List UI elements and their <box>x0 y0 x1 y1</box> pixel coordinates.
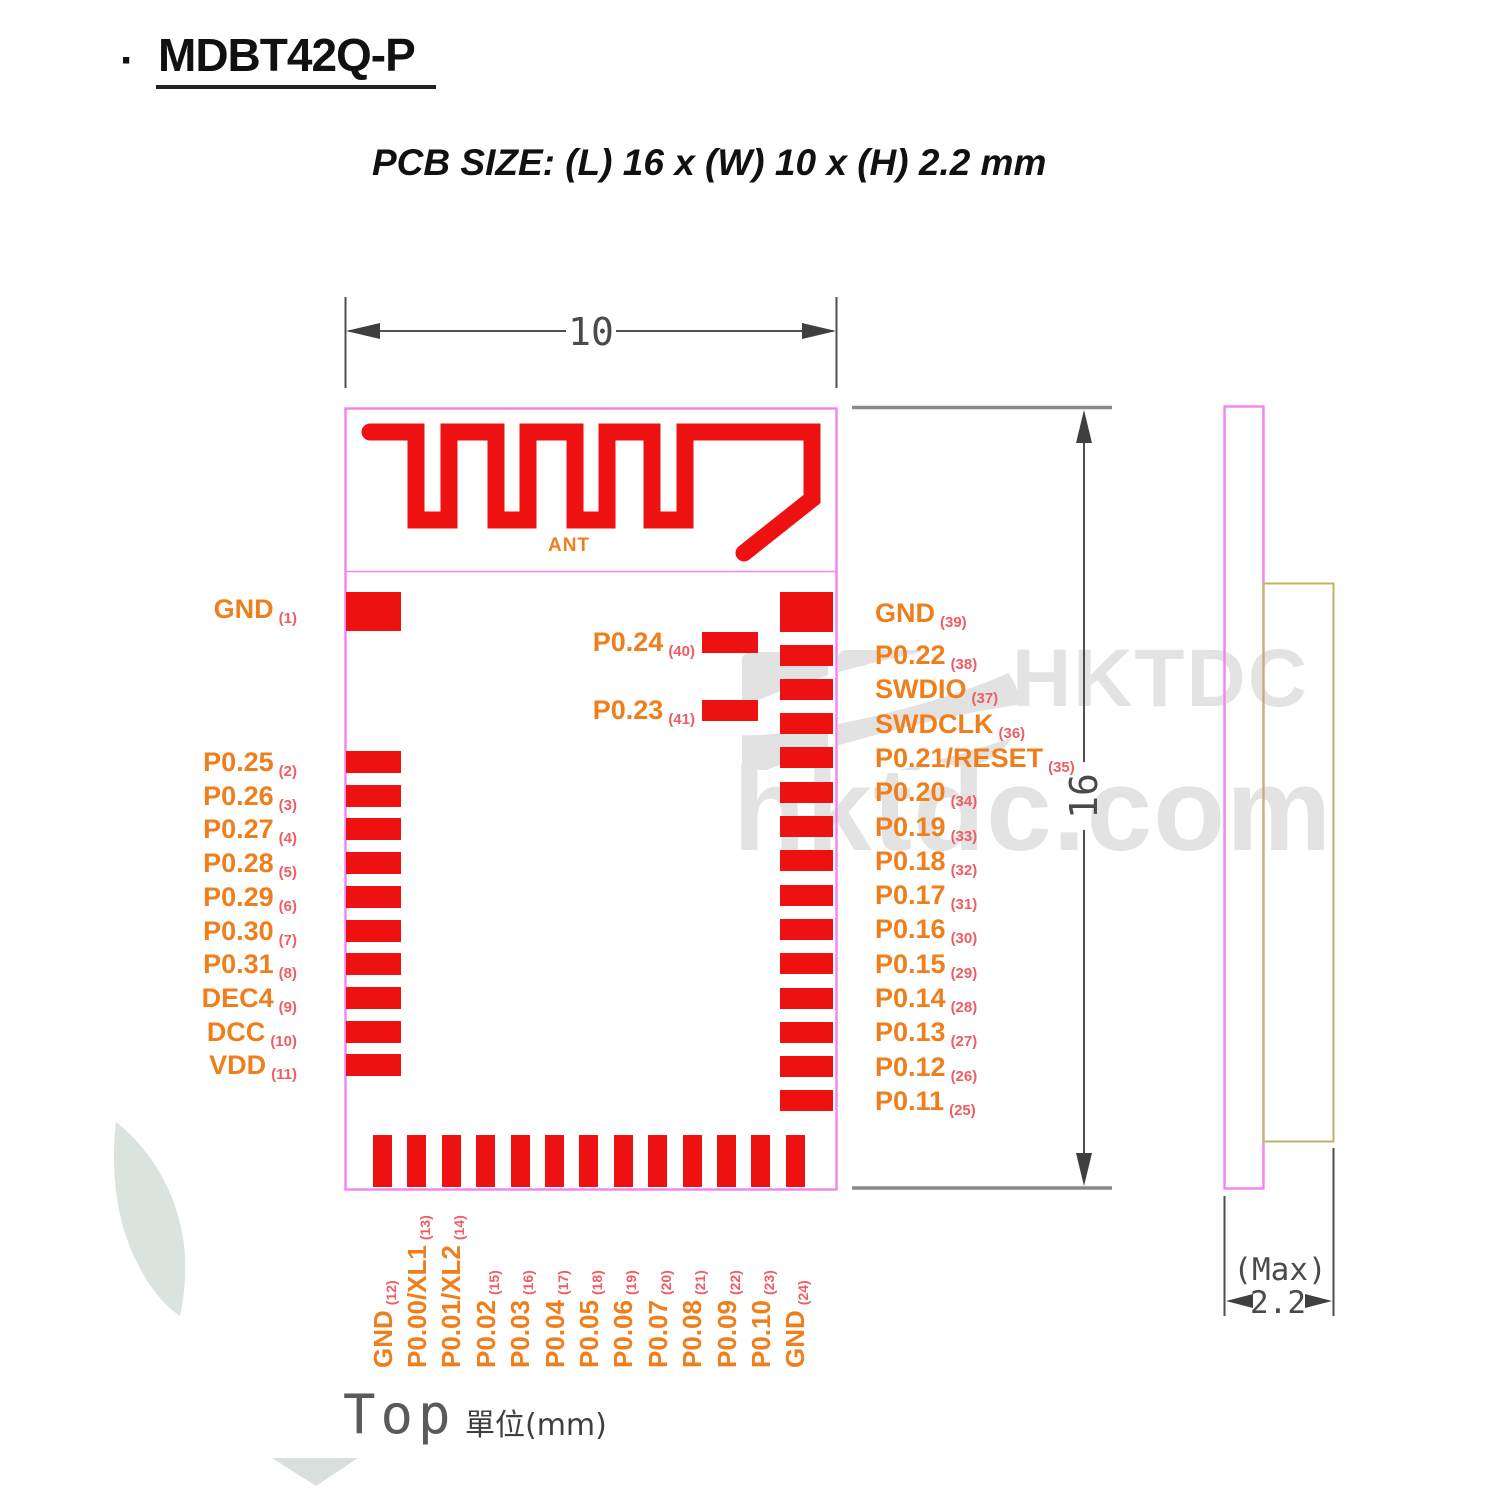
pin-number: (24) <box>795 1280 811 1305</box>
pin-number: (25) <box>949 1102 976 1119</box>
pin-name: P0.02 <box>471 1300 501 1368</box>
solder-pad <box>346 920 401 942</box>
pin-name: P0.04 <box>540 1300 570 1368</box>
pin-label-row: P0.18(32) <box>875 844 977 878</box>
pin-label-row: P0.02(15) <box>472 1270 500 1368</box>
solder-pad <box>780 885 833 906</box>
pin-label-row: VDD(11) <box>0 1048 297 1082</box>
thickness-qualifier: (Max) <box>1233 1252 1326 1288</box>
pin-number: (40) <box>668 643 695 660</box>
pin-number: (8) <box>279 965 297 982</box>
pin-number: (38) <box>951 656 978 673</box>
solder-pad <box>346 1021 401 1043</box>
pin-name: P0.17 <box>875 880 946 910</box>
pin-label-row: P0.10(23) <box>747 1270 775 1368</box>
pin-label-row: GND(24) <box>781 1280 809 1368</box>
pin-label-row: P0.07(20) <box>644 1270 672 1368</box>
pin-number: (37) <box>972 690 999 707</box>
pin-name: P0.25 <box>203 747 274 777</box>
arrow-up-icon <box>1076 410 1092 443</box>
pin-name: SWDIO <box>875 674 967 704</box>
pin-name: P0.30 <box>203 916 274 946</box>
pin-number: (3) <box>279 797 297 814</box>
solder-pad <box>780 782 833 803</box>
pin-label-row: P0.01/XL2(14) <box>437 1215 465 1368</box>
solder-pad <box>346 1054 401 1076</box>
arrow-right-icon <box>802 323 836 339</box>
solder-pad <box>476 1135 495 1187</box>
arrow-left-icon <box>1226 1294 1253 1308</box>
pin-number: (32) <box>951 862 978 879</box>
pin-label-row: P0.17(31) <box>875 878 977 912</box>
solder-pad <box>780 713 833 734</box>
pin-name: GND <box>780 1310 810 1368</box>
pin-name: P0.26 <box>203 781 274 811</box>
pin-number: (26) <box>951 1068 978 1085</box>
pin-number: (9) <box>279 999 297 1016</box>
view-label: Top <box>343 1383 456 1446</box>
pin-number: (11) <box>271 1066 297 1083</box>
pin-number: (5) <box>279 864 297 881</box>
pin-number: (36) <box>998 725 1025 742</box>
pin-number: (2) <box>279 763 297 780</box>
pin-name: P0.01/XL2 <box>436 1245 466 1368</box>
side-view-pcb <box>1225 407 1264 1189</box>
pin-number: (21) <box>692 1270 708 1295</box>
pin-label-row: P0.22(38) <box>875 638 977 672</box>
arrow-left-icon <box>346 323 380 339</box>
pin-name: P0.22 <box>875 640 946 670</box>
solder-pad <box>780 645 833 666</box>
pin-label-row: P0.31(8) <box>0 947 297 981</box>
pin-label-row: SWDIO(37) <box>875 672 998 706</box>
pin-name: VDD <box>209 1050 266 1080</box>
pin-label-row: P0.24(40) <box>0 625 695 659</box>
solder-pad <box>780 1056 833 1077</box>
pin-label-row: GND(12) <box>369 1280 397 1368</box>
pin-label-row: P0.04(17) <box>541 1270 569 1368</box>
solder-pad <box>579 1135 598 1187</box>
pin-number: (19) <box>623 1270 639 1295</box>
pin-name: P0.15 <box>875 949 946 979</box>
pin-number: (6) <box>279 898 297 915</box>
pin-label-row: P0.11(25) <box>875 1084 976 1118</box>
solder-pad <box>614 1135 633 1187</box>
solder-pad <box>346 953 401 975</box>
pin-name: P0.31 <box>203 949 274 979</box>
pin-number: (7) <box>279 932 297 949</box>
pin-label-row: P0.00/XL1(13) <box>403 1215 431 1368</box>
pin-number: (23) <box>761 1270 777 1295</box>
solder-pad <box>346 818 401 840</box>
solder-pad <box>702 700 758 721</box>
pin-label-row: P0.15(29) <box>875 947 977 981</box>
pin-name: P0.20 <box>875 777 946 807</box>
solder-pad <box>545 1135 564 1187</box>
pin-name: SWDCLK <box>875 709 993 739</box>
pin-label-row: DEC4(9) <box>0 981 297 1015</box>
pin-number: (10) <box>270 1033 297 1050</box>
pin-label-row: P0.23(41) <box>0 693 695 727</box>
pin-label-row: P0.27(4) <box>0 812 297 846</box>
solder-pad <box>717 1135 736 1187</box>
pin-name: GND <box>875 598 935 628</box>
solder-pad <box>373 1135 392 1187</box>
solder-pad <box>346 751 401 773</box>
solder-pad <box>702 632 758 653</box>
pin-label-row: P0.06(19) <box>609 1270 637 1368</box>
solder-pad <box>780 816 833 837</box>
pin-number: (30) <box>951 930 978 947</box>
pin-label-row: P0.26(3) <box>0 779 297 813</box>
pin-name: P0.06 <box>608 1300 638 1368</box>
pin-label-row: GND(39) <box>875 596 967 630</box>
pin-label-row: P0.25(2) <box>0 745 297 779</box>
pin-number: (34) <box>951 793 978 810</box>
pin-name: GND <box>214 594 274 624</box>
pin-number: (14) <box>451 1215 467 1240</box>
pin-number: (16) <box>520 1270 536 1295</box>
pin-number: (28) <box>951 999 978 1016</box>
solder-pad <box>786 1135 805 1187</box>
solder-pad <box>346 987 401 1009</box>
solder-pad <box>780 1090 833 1111</box>
pin-name: P0.29 <box>203 882 274 912</box>
pin-name: P0.08 <box>677 1300 707 1368</box>
solder-pad <box>511 1135 530 1187</box>
pin-label-row: P0.13(27) <box>875 1015 977 1049</box>
pin-label-row: P0.21/RESET(35) <box>875 741 1075 775</box>
height-dimension-value: 16 <box>1062 773 1106 819</box>
solder-pad <box>780 747 833 768</box>
arrow-right-icon <box>1305 1294 1332 1308</box>
pin-label-row: P0.09(22) <box>713 1270 741 1368</box>
pin-number: (33) <box>951 828 978 845</box>
pin-number: (29) <box>951 965 978 982</box>
pin-name: P0.24 <box>593 627 664 657</box>
arrow-down-icon <box>1076 1153 1092 1186</box>
pin-name: DEC4 <box>202 983 274 1013</box>
antenna-label: ANT <box>537 535 601 557</box>
pin-number: (17) <box>555 1270 571 1295</box>
pin-label-row: P0.30(7) <box>0 914 297 948</box>
pin-number: (4) <box>279 830 297 847</box>
pin-label-row: GND(1) <box>0 592 297 626</box>
pin-name: P0.21/RESET <box>875 743 1043 773</box>
pin-label-row: P0.12(26) <box>875 1050 977 1084</box>
solder-pad <box>780 1022 833 1043</box>
solder-pad <box>346 785 401 807</box>
pin-name: P0.13 <box>875 1017 946 1047</box>
pcb-dimension-drawing-page: HKTDC hktdc.com · MDBT42Q-P PCB SIZE: (L… <box>0 0 1500 1500</box>
side-view-component <box>1264 584 1334 1142</box>
pin-name: P0.18 <box>875 846 946 876</box>
pin-label-row: P0.16(30) <box>875 912 977 946</box>
pin-name: P0.12 <box>875 1052 946 1082</box>
pin-number: (39) <box>940 614 967 631</box>
pin-number: (22) <box>727 1270 743 1295</box>
pin-name: P0.09 <box>712 1300 742 1368</box>
pin-name: P0.05 <box>574 1300 604 1368</box>
solder-pad <box>346 852 401 874</box>
solder-pad <box>780 850 833 871</box>
pin-label-row: P0.08(21) <box>678 1270 706 1368</box>
pin-number: (35) <box>1048 759 1075 776</box>
pin-name: P0.16 <box>875 914 946 944</box>
pin-name: P0.07 <box>643 1300 673 1368</box>
pin-label-row: P0.03(16) <box>506 1270 534 1368</box>
pin-name: P0.23 <box>593 695 664 725</box>
pin-label-row: P0.19(33) <box>875 810 977 844</box>
pin-label-row: P0.28(5) <box>0 846 297 880</box>
pin-name: P0.14 <box>875 983 946 1013</box>
pin-name: P0.27 <box>203 814 274 844</box>
solder-pad <box>442 1135 461 1187</box>
pin-number: (18) <box>589 1270 605 1295</box>
width-dimension-value: 10 <box>568 310 614 354</box>
pin-name: P0.03 <box>505 1300 535 1368</box>
solder-pad <box>780 592 833 632</box>
solder-pad <box>648 1135 667 1187</box>
pin-name: P0.19 <box>875 812 946 842</box>
pin-name: P0.10 <box>746 1300 776 1368</box>
pin-label-row: SWDCLK(36) <box>875 707 1025 741</box>
solder-pad <box>346 886 401 908</box>
pin-number: (27) <box>951 1033 978 1050</box>
solder-pad <box>780 953 833 974</box>
pin-name: GND <box>368 1310 398 1368</box>
pin-number: (41) <box>668 711 695 728</box>
pin-number: (31) <box>951 896 978 913</box>
pin-label-row: P0.29(6) <box>0 880 297 914</box>
solder-pad <box>780 919 833 940</box>
pin-label-row: DCC(10) <box>0 1015 297 1049</box>
pin-name: P0.00/XL1 <box>402 1245 432 1368</box>
thickness-dimension-value: 2.2 <box>1250 1285 1306 1321</box>
solder-pad <box>751 1135 770 1187</box>
pin-label-row: P0.20(34) <box>875 775 977 809</box>
pin-label-row: P0.14(28) <box>875 981 977 1015</box>
solder-pad <box>780 988 833 1009</box>
units-label: 單位(mm) <box>465 1400 607 1444</box>
pin-name: P0.28 <box>203 848 274 878</box>
pin-label-row: P0.05(18) <box>575 1270 603 1368</box>
pin-number: (13) <box>417 1215 433 1240</box>
pin-name: DCC <box>207 1017 266 1047</box>
pin-number: (15) <box>486 1270 502 1295</box>
solder-pad <box>407 1135 426 1187</box>
pin-number: (12) <box>383 1280 399 1305</box>
pin-number: (20) <box>658 1270 674 1295</box>
solder-pad <box>780 679 833 700</box>
pin-name: P0.11 <box>875 1086 944 1116</box>
solder-pad <box>683 1135 702 1187</box>
